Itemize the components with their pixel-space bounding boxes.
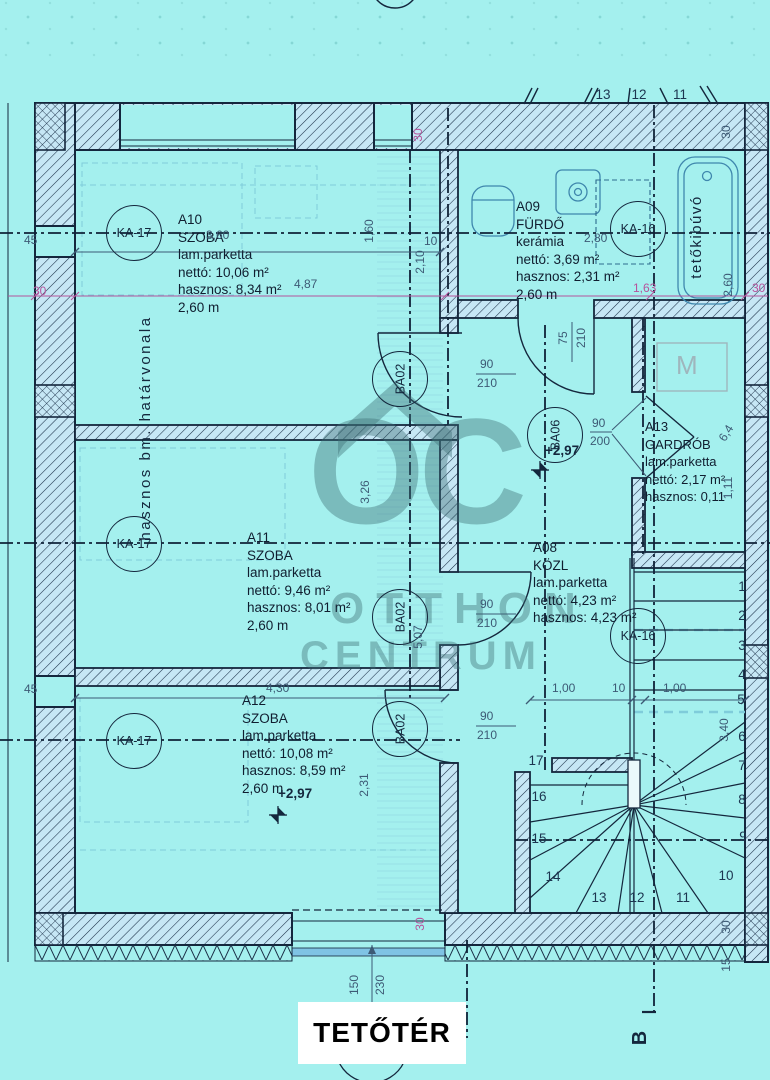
dim-3-60: 3,60: [206, 228, 229, 242]
room-a10: A10 SZOBA lam.parketta nettó: 10,06 m² h…: [178, 211, 282, 316]
dim-45: 45: [24, 233, 37, 247]
dim-2-60: 2,60: [721, 265, 735, 305]
stair-step-number: 13: [593, 87, 613, 102]
stair-step-number: 3: [732, 638, 752, 653]
dim-5-07: 5,07: [411, 617, 425, 657]
dim-door-210: 210: [477, 728, 497, 742]
dim-4-30: 4,30: [266, 681, 289, 695]
room-useful: hasznos: 2,31 m²: [516, 268, 620, 286]
dim-150: 150: [347, 965, 361, 1005]
room-useful: hasznos: 0,11: [645, 488, 725, 506]
dim-1-63: 1,63: [633, 281, 656, 295]
room-id: A12: [242, 692, 346, 710]
room-floor: lam.parketta: [242, 727, 346, 745]
marker-ka17-a12: KA-17: [106, 713, 162, 769]
room-floor: lam.parketta: [645, 453, 725, 471]
room-netto: nettó: 10,06 m²: [178, 264, 282, 282]
room-name: SZOBA: [242, 710, 346, 728]
room-floor: lam.parketta: [178, 246, 282, 264]
room-id: A13: [645, 418, 725, 436]
room-a13: A13 GARDRÓB lam.parketta nettó: 2,17 m² …: [645, 418, 725, 506]
dim-2-80: 2,80: [584, 231, 607, 245]
stair-step-number: 12: [629, 87, 649, 102]
room-netto: nettó: 9,46 m²: [247, 582, 351, 600]
room-name: SZOBA: [178, 229, 282, 247]
stair-step-number: 1: [732, 579, 752, 594]
stair-step-number: 9: [733, 829, 753, 844]
stair-step-number: 13: [589, 890, 609, 905]
dim-10: 10: [612, 681, 625, 695]
dim-1-60: 1,60: [362, 211, 376, 251]
dim-4-87: 4,87: [294, 277, 317, 291]
dim-15: 15: [719, 945, 733, 985]
marker-ka16-hall: KA-16: [610, 608, 666, 664]
room-a09: A09 FÜRDŐ kerámia nettó: 3,69 m² hasznos…: [516, 198, 620, 303]
room-useful: hasznos: 8,01 m²: [247, 599, 351, 617]
stair-step-number: 11: [670, 87, 690, 102]
dim-door-90: 90: [480, 597, 493, 611]
room-height: 2,60 m: [247, 617, 351, 635]
dim-3-40: 3,40: [717, 710, 731, 750]
dim-30: 30: [719, 112, 733, 152]
dim-30: 30: [411, 115, 425, 155]
room-useful: hasznos: 8,34 m²: [178, 281, 282, 299]
room-useful: hasznos: 8,59 m²: [242, 762, 346, 780]
stair-step-number: 14: [543, 869, 563, 884]
dim-1-00: 1,00: [552, 681, 575, 695]
stair-step-number: 15: [529, 831, 549, 846]
dim-2-31: 2,31: [357, 765, 371, 805]
stair-step-number: 7: [732, 758, 752, 773]
room-netto: nettó: 4,23 m²: [533, 592, 637, 610]
room-floor: lam.parketta: [533, 574, 637, 592]
stair-step-number: 8: [732, 792, 752, 807]
dim-door-90: 90: [592, 416, 605, 430]
dim-2-10: 2,10: [413, 242, 427, 282]
room-id: A09: [516, 198, 620, 216]
elevation-label: +2,97: [545, 444, 579, 458]
stair-step-number: 11: [673, 890, 693, 905]
stair-step-number: 2: [732, 608, 752, 623]
marker-ka17-a10: KA-17: [106, 205, 162, 261]
room-name: KÖZL: [533, 557, 637, 575]
elevation-label: +2,97: [278, 787, 312, 801]
stair-step-number: 12: [627, 890, 647, 905]
dim-45: 45: [24, 682, 37, 696]
stair-step-number: 17: [526, 753, 546, 768]
room-netto: nettó: 3,69 m²: [516, 251, 620, 269]
dim-door-210: 210: [574, 318, 588, 358]
dim-1-00: 1,00: [663, 681, 686, 695]
dim-3-26: 3,26: [358, 472, 372, 512]
dim-30: 30: [413, 904, 427, 944]
room-netto: nettó: 2,17 m²: [645, 471, 725, 489]
dim-30: 30: [33, 284, 46, 298]
dim-door-90: 90: [480, 709, 493, 723]
dim-1-11: 1,11: [721, 468, 735, 508]
room-id: A08: [533, 539, 637, 557]
room-netto: nettó: 10,08 m²: [242, 745, 346, 763]
dim-door-210: 210: [477, 376, 497, 390]
marker-ba02-a10: BA02: [372, 351, 428, 407]
stair-newel-post: [628, 760, 640, 808]
stair-step-number: 10: [716, 868, 736, 883]
stair-step-number: 4: [732, 667, 752, 682]
floor-plan-attic: OC OTTHON CENTRUM A10 SZOBA lam.parketta…: [0, 0, 770, 1080]
toilet-icon: [472, 186, 514, 236]
dim-door-90: 90: [480, 357, 493, 371]
stair-step-number: 5: [731, 692, 751, 707]
section-b-marker: B: [629, 1026, 651, 1050]
room-name: SZOBA: [247, 547, 351, 565]
roof-hatch-label: tetőkibúvó: [688, 142, 706, 332]
marker-ba02-a12: BA02: [372, 701, 428, 757]
room-id: A10: [178, 211, 282, 229]
dim-30: 30: [752, 281, 765, 295]
dim-30: 30: [719, 907, 733, 947]
room-height: 2,60 m: [178, 299, 282, 317]
room-a12: A12 SZOBA lam.parketta nettó: 10,08 m² h…: [242, 692, 346, 797]
plan-title: TETŐTÉR: [298, 1002, 466, 1064]
stair-step-number: 16: [529, 789, 549, 804]
room-a11: A11 SZOBA lam.parketta nettó: 9,46 m² ha…: [247, 529, 351, 634]
room-id: A11: [247, 529, 351, 547]
marker-ka16-bath: KA-16: [610, 201, 666, 257]
dim-door-210: 210: [477, 616, 497, 630]
room-floor: lam.parketta: [247, 564, 351, 582]
useful-area-boundary-label: hasznos bm. határvonala: [137, 258, 155, 598]
wardrobe-m-label: M: [676, 350, 698, 381]
dim-door-200: 200: [590, 434, 610, 448]
room-height: 2,60 m: [516, 286, 620, 304]
dim-door-75: 75: [556, 318, 570, 358]
dim-230: 230: [373, 965, 387, 1005]
stair-step-number: 6: [732, 729, 752, 744]
